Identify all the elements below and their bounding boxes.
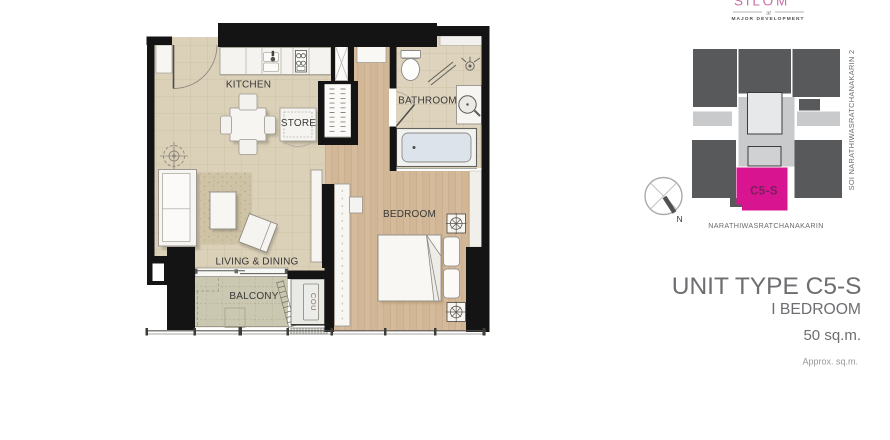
svg-text:UNIT TYPE C5-S: UNIT TYPE C5-S (672, 273, 862, 300)
svg-text:C5-S: C5-S (750, 186, 778, 198)
svg-text:STORE: STORE (281, 118, 316, 129)
svg-text:BALCONY: BALCONY (229, 291, 278, 302)
svg-text:Approx. sq.m.: Approx. sq.m. (802, 357, 858, 367)
svg-text:MAJOR DEVELOPMENT: MAJOR DEVELOPMENT (731, 16, 804, 22)
svg-text:SOI NARATHIWASRATCHANAKARIN 2: SOI NARATHIWASRATCHANAKARIN 2 (847, 50, 856, 191)
svg-text:NARATHIWASRATCHANAKARIN: NARATHIWASRATCHANAKARIN (708, 222, 823, 230)
svg-text:N: N (677, 214, 683, 224)
svg-text:SILOM: SILOM (734, 0, 790, 9)
svg-text:BEDROOM: BEDROOM (383, 209, 436, 220)
svg-text:50 sq.m.: 50 sq.m. (803, 327, 861, 344)
svg-text:I BEDROOM: I BEDROOM (771, 301, 861, 318)
svg-text:KITCHEN: KITCHEN (226, 80, 271, 91)
svg-text:COU: COU (309, 293, 318, 311)
svg-text:at: at (766, 11, 771, 17)
svg-text:LIVING & DINING: LIVING & DINING (215, 257, 298, 268)
svg-text:BATHROOM: BATHROOM (398, 96, 457, 107)
